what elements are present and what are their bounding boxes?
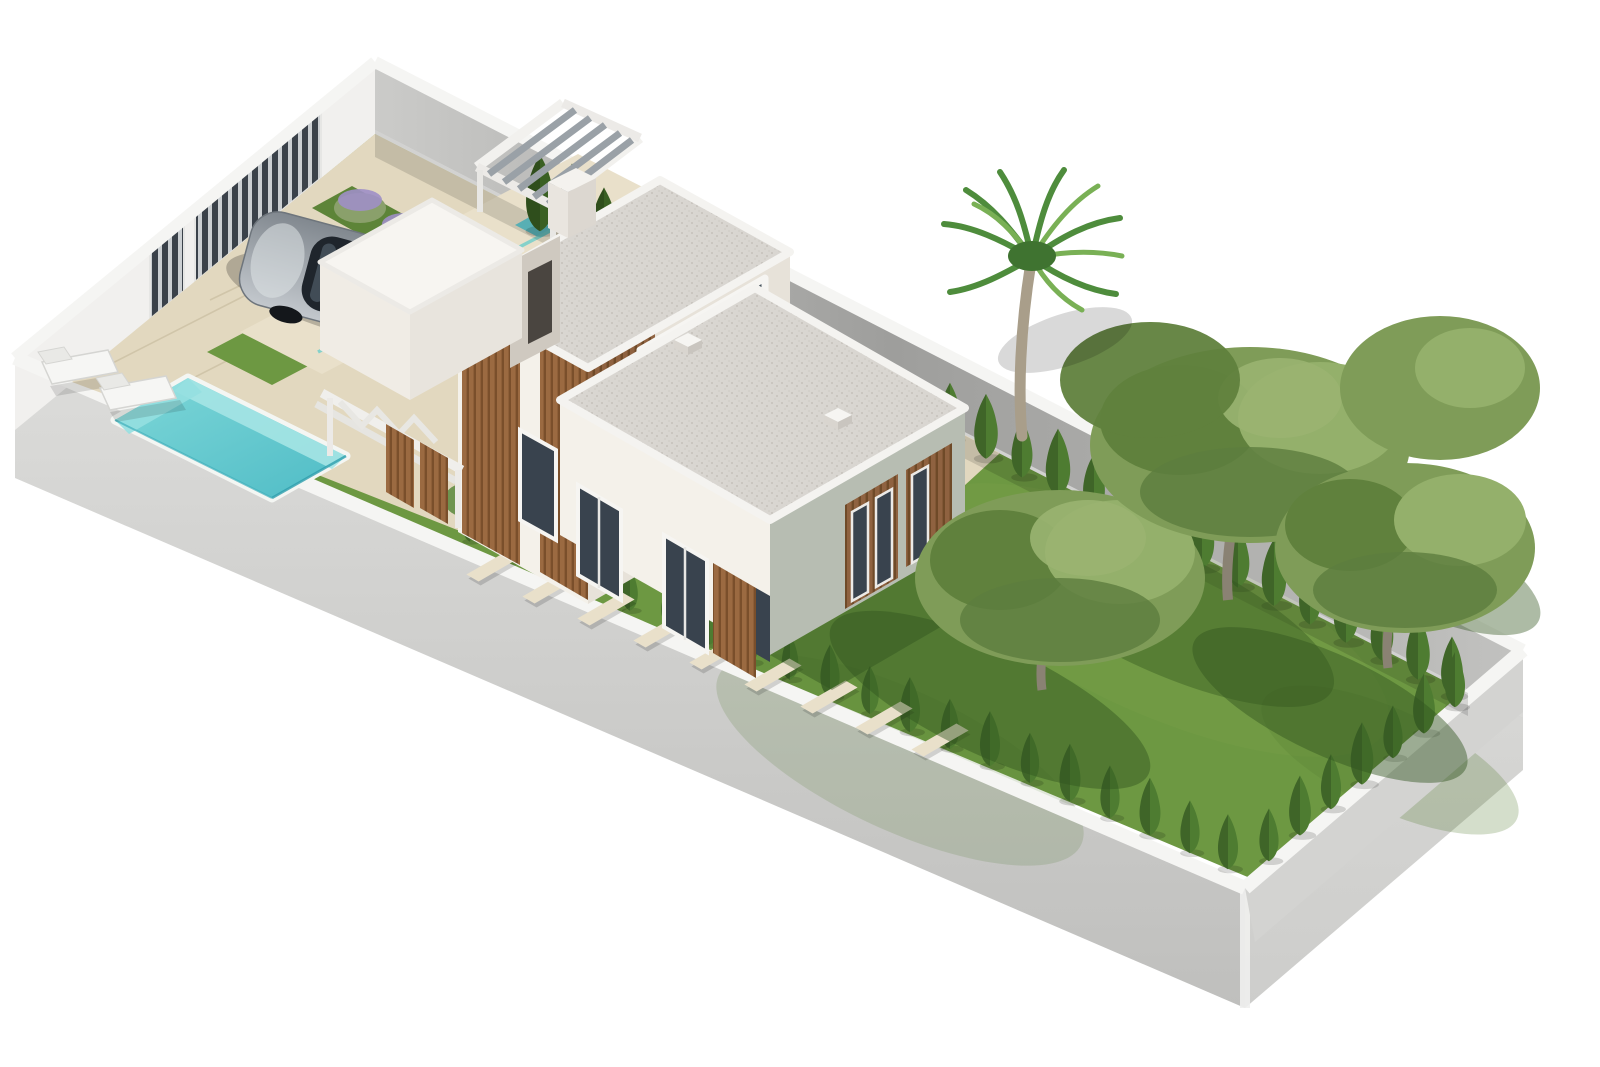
- chimney: [548, 168, 596, 238]
- entry-door: [528, 260, 552, 344]
- isometric-scene: 3D isometric architectural rendering of …: [0, 0, 1600, 1067]
- window: [520, 430, 556, 540]
- lavender-clump: [334, 189, 386, 223]
- villa-render: 3D isometric architectural rendering of …: [0, 0, 1600, 1067]
- palm-crown-core: [1008, 241, 1056, 271]
- corner-canopy-highlight: [1415, 328, 1525, 408]
